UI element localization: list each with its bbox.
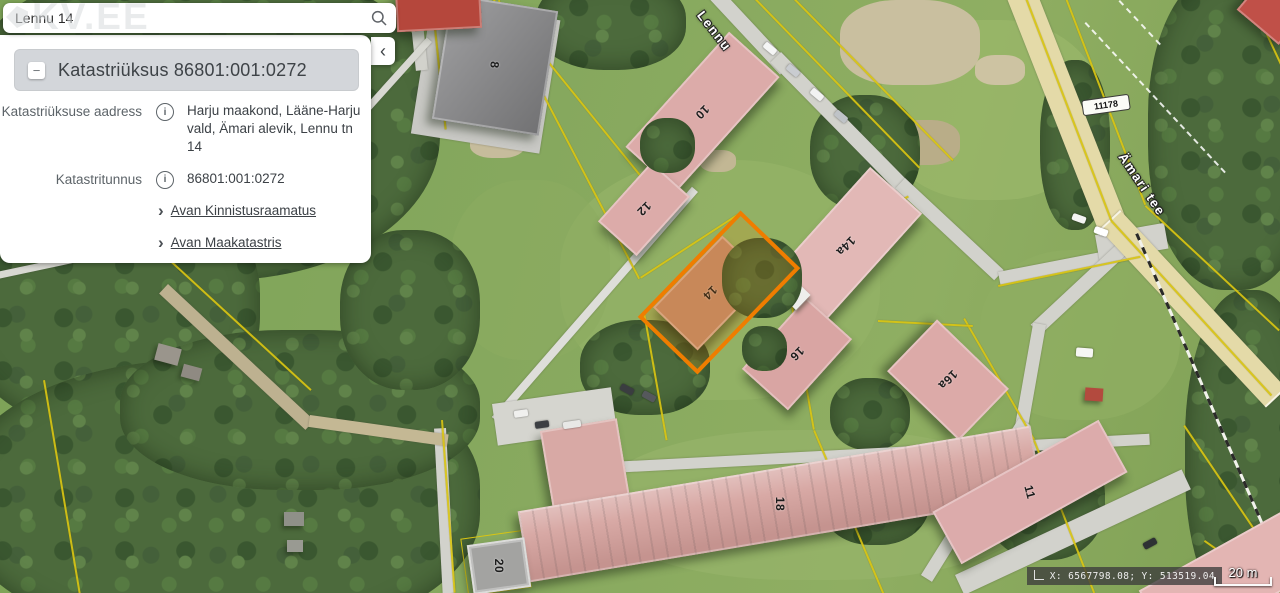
building-label: 12 <box>634 199 654 219</box>
info-icon[interactable]: i <box>156 103 174 121</box>
shed <box>1085 387 1104 401</box>
address-row: Katastriüksuse aadress i Harju maakond, … <box>0 102 371 157</box>
building-label: 16a <box>935 367 960 392</box>
minus-icon: − <box>33 64 41 77</box>
forest-patch <box>830 378 910 450</box>
car <box>1142 537 1158 550</box>
coordinates-axes-icon <box>1034 570 1044 580</box>
scale-bar-bracket <box>1214 577 1272 586</box>
building-label: 18 <box>773 497 787 511</box>
shed <box>284 512 304 526</box>
cadastral-code-label: Katastritunnus <box>0 170 142 189</box>
building-20: 20 <box>467 537 531 593</box>
building-label: 16 <box>787 344 807 364</box>
address-value: Harju maakond, Lääne-Harju vald, Ämari a… <box>187 102 363 157</box>
map-viewport[interactable]: 8 10 12 14 14a 16 16a 18 20 11 <box>0 0 1280 593</box>
kinnistusraamat-link[interactable]: › Avan Kinnistusraamatus <box>158 202 371 219</box>
address-label: Katastriüksuse aadress <box>0 102 142 157</box>
cadastral-line <box>546 60 648 186</box>
info-icon[interactable]: i <box>156 171 174 189</box>
collapse-section-button[interactable]: − <box>28 62 45 79</box>
search-input[interactable] <box>3 10 396 26</box>
building-label: 10 <box>692 102 712 122</box>
building-label: 8 <box>488 61 503 69</box>
dashed-boundary-line <box>1119 0 1161 45</box>
coordinates-value: X: 6567798.08; Y: 513519.04 <box>1050 571 1215 582</box>
building-label: 20 <box>492 559 506 573</box>
cadastral-code-value: 86801:001:0272 <box>187 170 363 189</box>
dirt-patch <box>840 0 980 85</box>
panel-body: Katastriüksuse aadress i Harju maakond, … <box>0 91 371 251</box>
chevron-right-icon: › <box>158 234 164 251</box>
scale-bar: 20 m <box>1214 565 1272 586</box>
building-label: 11 <box>1021 484 1038 501</box>
tree-cluster <box>742 326 787 371</box>
panel-title: Katastriüksus 86801:001:0272 <box>58 60 307 81</box>
chevron-left-icon: ‹ <box>380 41 386 62</box>
cadastral-line <box>878 320 973 327</box>
shed <box>287 540 303 552</box>
search-icon[interactable] <box>371 10 387 26</box>
building-label: 14a <box>833 233 858 258</box>
maakataster-link[interactable]: › Avan Maakatastris <box>158 234 371 251</box>
maakataster-link-label: Avan Maakatastris <box>171 235 282 250</box>
info-panel: − Katastriüksus 86801:001:0272 Katastriü… <box>0 35 371 263</box>
tree-cluster <box>640 118 695 173</box>
kinnistusraamat-link-label: Avan Kinnistusraamatus <box>171 203 316 218</box>
search-bar <box>3 3 396 33</box>
cadastral-code-row: Katastritunnus i 86801:001:0272 <box>0 170 371 189</box>
panel-collapse-button[interactable]: ‹ <box>371 37 395 65</box>
building-partial-red <box>395 0 482 32</box>
forest-patch <box>536 0 686 70</box>
car <box>1076 347 1094 357</box>
coordinates-display: X: 6567798.08; Y: 513519.04 <box>1027 567 1222 585</box>
chevron-right-icon: › <box>158 202 164 219</box>
panel-header: − Katastriüksus 86801:001:0272 <box>14 49 359 91</box>
dirt-patch <box>975 55 1025 85</box>
